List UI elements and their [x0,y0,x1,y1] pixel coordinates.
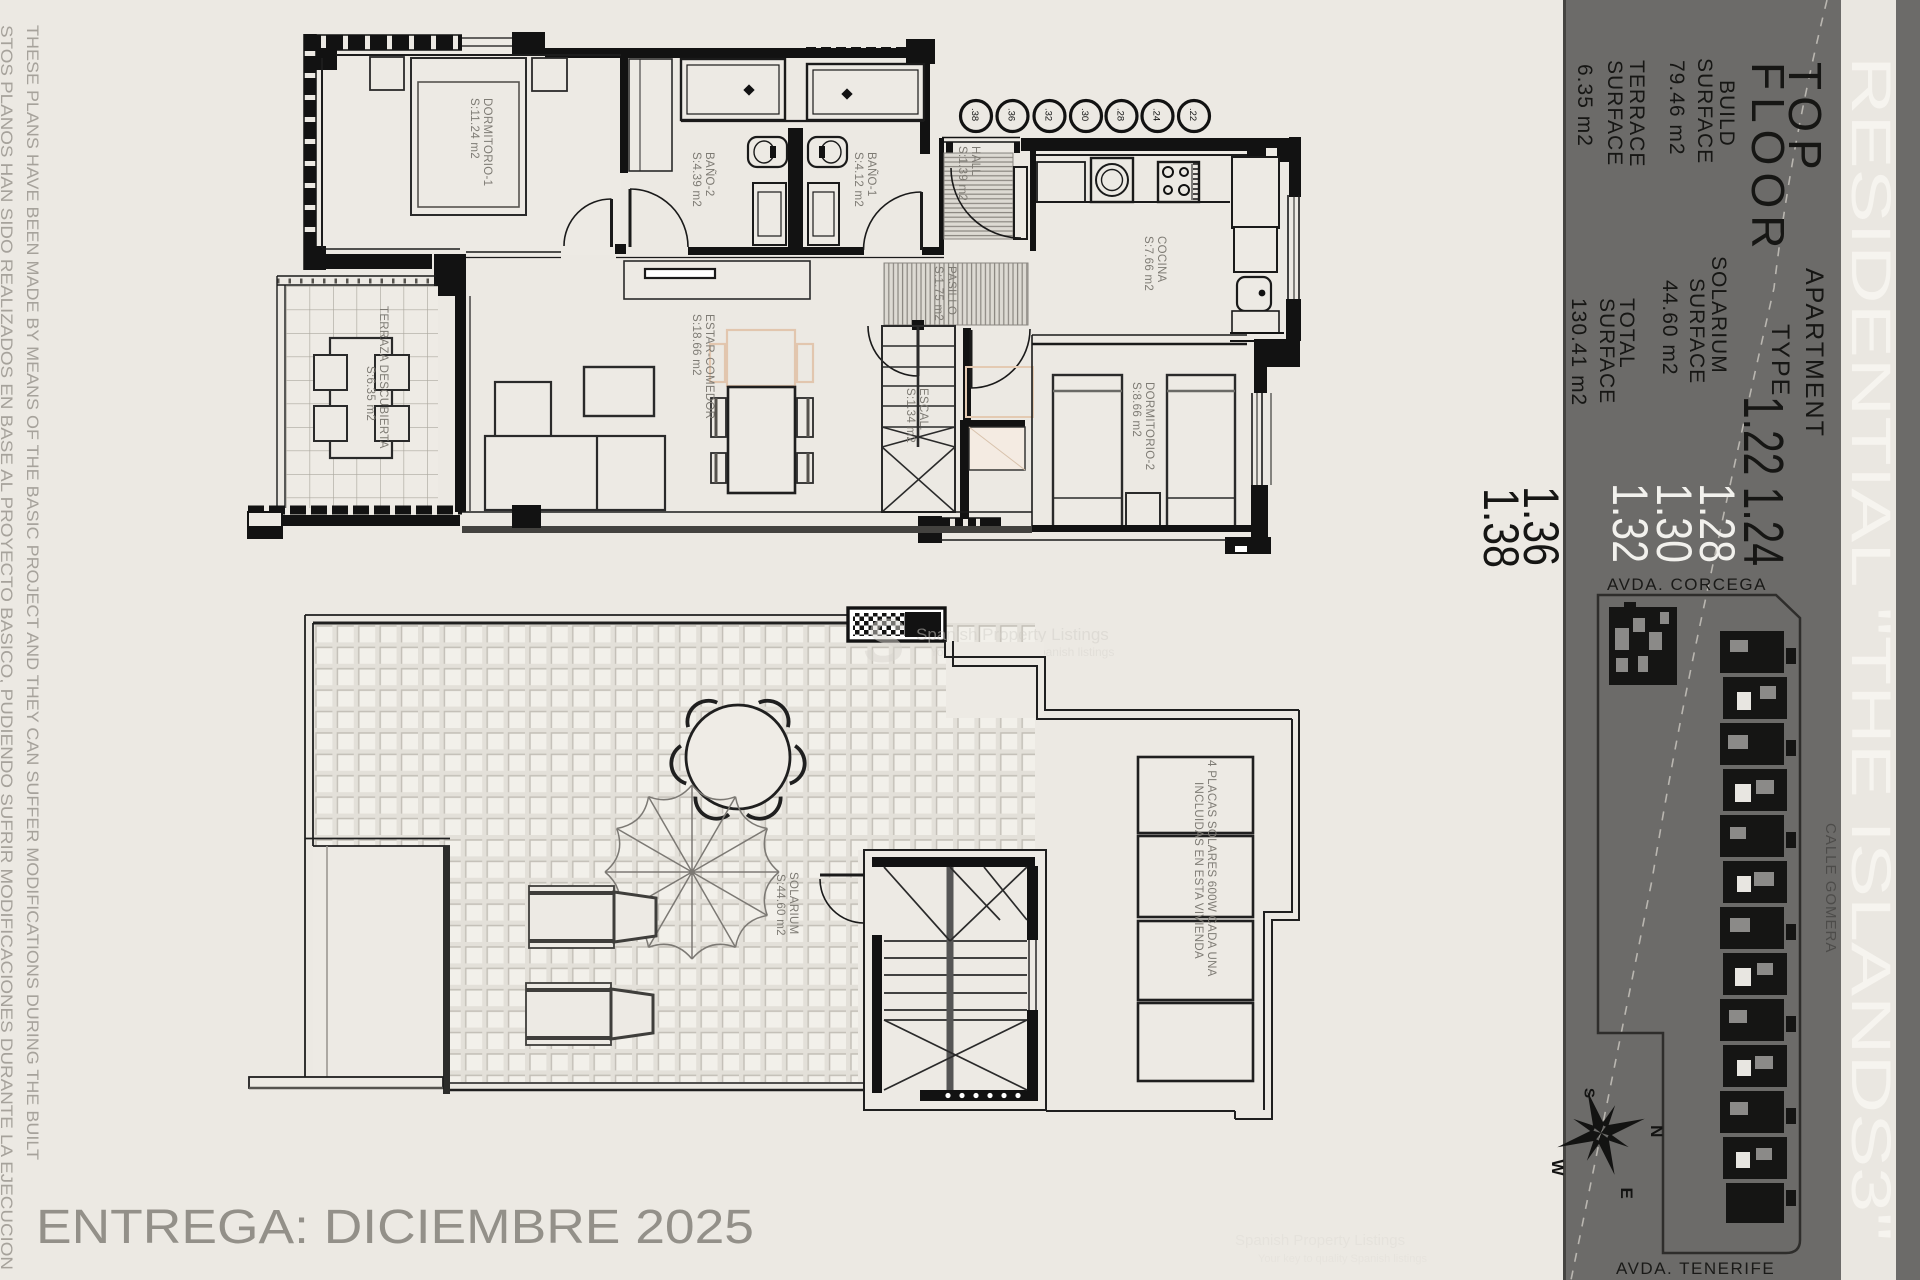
svg-text:CALLE GOMERA: CALLE GOMERA [1822,823,1839,953]
svg-text:SURFACE: SURFACE [1685,278,1708,384]
svg-text:SURFACE: SURFACE [1693,58,1716,164]
svg-text:6.35 m2: 6.35 m2 [1573,64,1596,147]
svg-text:1.38: 1.38 [1473,488,1529,568]
svg-text:.30: .30 [1079,108,1090,121]
svg-text:SOLARIUMS:44.60 m2: SOLARIUMS:44.60 m2 [774,872,799,936]
svg-text:APARTMENT: APARTMENT [1800,268,1828,438]
svg-text:S: S [864,607,905,676]
svg-text:FLOOR: FLOOR [1742,62,1794,255]
svg-text:TERRACE: TERRACE [1625,60,1648,167]
svg-text:S: S [1580,1088,1597,1098]
svg-text:TYPE: TYPE [1766,324,1794,397]
svg-text:.36: .36 [1006,108,1017,121]
svg-text:Spanish Property Listings: Spanish Property Listings [1235,1232,1405,1249]
svg-text:.22: .22 [1187,108,1198,121]
svg-text:RESIDENTIAL "THE ISLANDS3": RESIDENTIAL "THE ISLANDS3" [1840,56,1903,1241]
svg-text:44.60 m2: 44.60 m2 [1658,280,1681,376]
svg-text:SURFACE: SURFACE [1595,298,1618,404]
svg-text:AVDA. CORCEGA: AVDA. CORCEGA [1607,575,1767,594]
svg-text:.38: .38 [969,108,980,121]
svg-text:130.41 m2: 130.41 m2 [1567,298,1590,406]
svg-text:79.46 m2: 79.46 m2 [1665,60,1688,156]
svg-text:1.32: 1.32 [1602,483,1658,563]
svg-text:PASILLOS:1.75 m2: PASILLOS:1.75 m2 [932,266,957,321]
svg-text:4 PLACAS SOLARES 600W CADA UNA: 4 PLACAS SOLARES 600W CADA UNAINCLUIDAS … [1192,760,1217,977]
svg-text:N: N [1647,1125,1666,1137]
svg-text:THESE PLANS HAVE BEEN MADE BY: THESE PLANS HAVE BEEN MADE BY MEANS OF T… [23,25,41,1160]
svg-text:.24: .24 [1151,108,1162,121]
svg-text:Your key to quality Spanish li: Your key to quality Spanish listings [1258,1253,1427,1265]
svg-text:.32: .32 [1043,108,1054,121]
svg-text:.28: .28 [1115,108,1126,121]
svg-text:W: W [1548,1160,1567,1177]
svg-text:SOLARIUM: SOLARIUM [1707,256,1730,374]
svg-text:BUILD: BUILD [1715,80,1738,147]
svg-text:E: E [1617,1188,1636,1199]
svg-text:AVDA. TENERIFE: AVDA. TENERIFE [1616,1259,1775,1278]
svg-text:SURFACE: SURFACE [1603,60,1626,166]
svg-text:ENTREGA: DICIEMBRE 2025: ENTREGA: DICIEMBRE 2025 [36,1201,754,1254]
svg-text:STOS PLANOS HAN SIDO REALIZADO: STOS PLANOS HAN SIDO REALIZADOS EN BASE … [0,25,15,1270]
